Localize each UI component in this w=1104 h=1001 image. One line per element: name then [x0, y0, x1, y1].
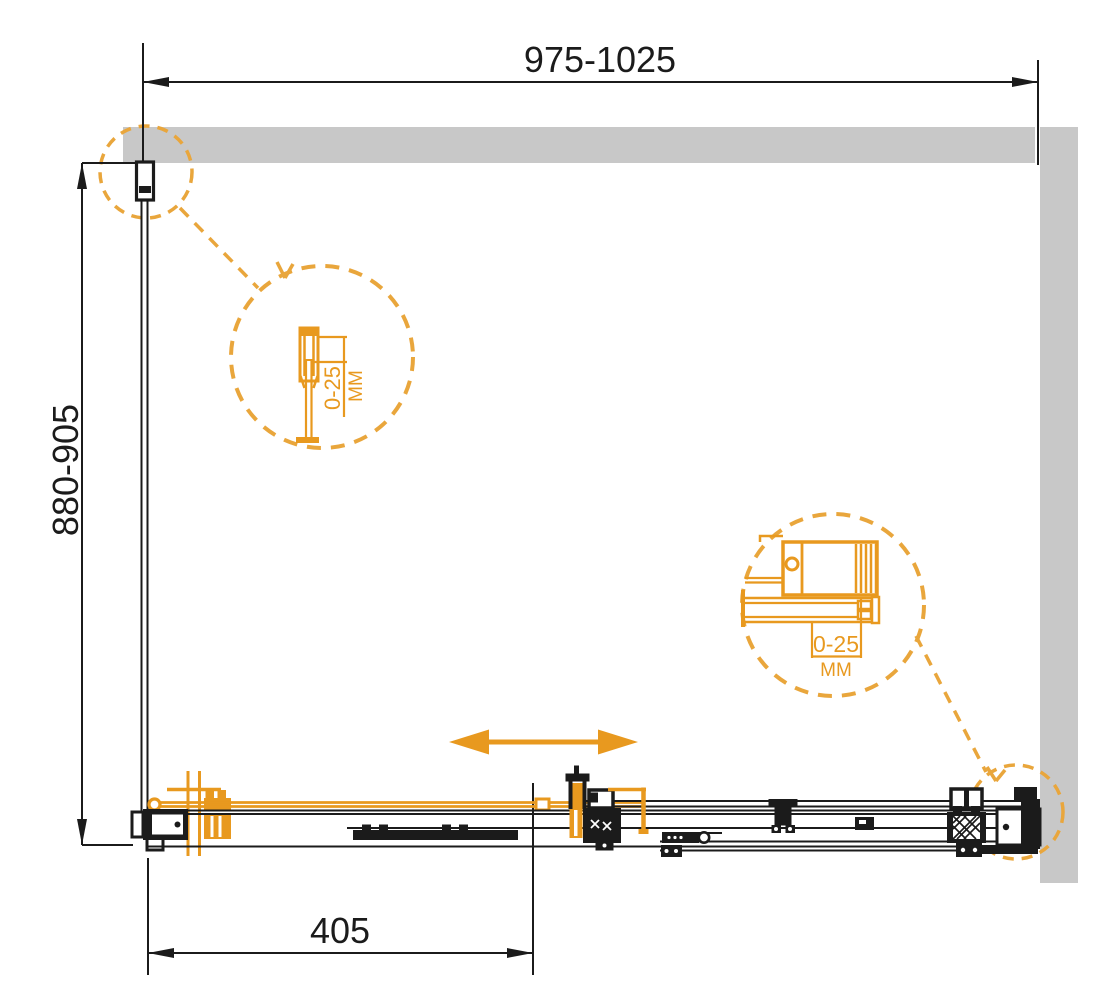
arrow-down-icon: [77, 819, 87, 845]
dimension-door-opening: 405: [148, 783, 533, 975]
arrow-right-icon: [1012, 77, 1038, 87]
detail-right-wall-profile: 0-25 MM: [743, 536, 879, 681]
roller-wheel-icon: [699, 832, 709, 842]
top-wall-profile: [137, 162, 154, 200]
drawing-canvas: 975-1025 880-905 405: [0, 0, 1104, 1001]
screw-icon: [1003, 824, 1009, 830]
dimension-depth: 880-905: [45, 163, 137, 845]
arrow-left-icon: [148, 948, 174, 958]
detail-top-left-wall-profile: 0-25 MM: [296, 328, 367, 443]
right-wall-profile: [981, 787, 1040, 854]
door-track-assembly: [132, 766, 1040, 858]
rail-connector: [536, 799, 549, 810]
callout-connector-left: [180, 208, 258, 288]
wall-top: [123, 127, 1035, 163]
wall-right: [1040, 127, 1078, 883]
dimension-door-label: 405: [310, 910, 370, 951]
screw-icon: [786, 558, 798, 570]
callout-detail-circle-top-left: [231, 266, 413, 448]
callout-circles: [100, 126, 1063, 859]
dimension-depth-label: 880-905: [45, 404, 86, 536]
technical-drawing: 975-1025 880-905 405: [0, 0, 1104, 1001]
rail-end-cap: [149, 799, 160, 810]
rail-clamp: [855, 817, 874, 830]
dimension-width-label: 975-1025: [524, 39, 676, 80]
left-wall-profile: [132, 809, 188, 850]
slide-direction-arrow-icon: [449, 730, 638, 755]
arrow-left-icon: [143, 77, 169, 87]
door-latch-bar: [661, 832, 722, 857]
side-glass-panel: [137, 162, 154, 812]
top-wall-profile-clamp: [139, 186, 151, 193]
callout-connector-right: [916, 636, 986, 772]
arrow-up-icon: [77, 163, 87, 189]
center-roller-carriage: [566, 766, 649, 851]
door-panel-bottom-bar: [353, 825, 518, 841]
adjustment-range-label: 0-25: [320, 366, 345, 410]
unit-label: MM: [346, 370, 367, 402]
arrow-right-icon: [507, 948, 533, 958]
adjustment-range-label: 0-25: [813, 631, 859, 657]
unit-label: MM: [820, 660, 852, 681]
screw-icon: [175, 822, 181, 828]
